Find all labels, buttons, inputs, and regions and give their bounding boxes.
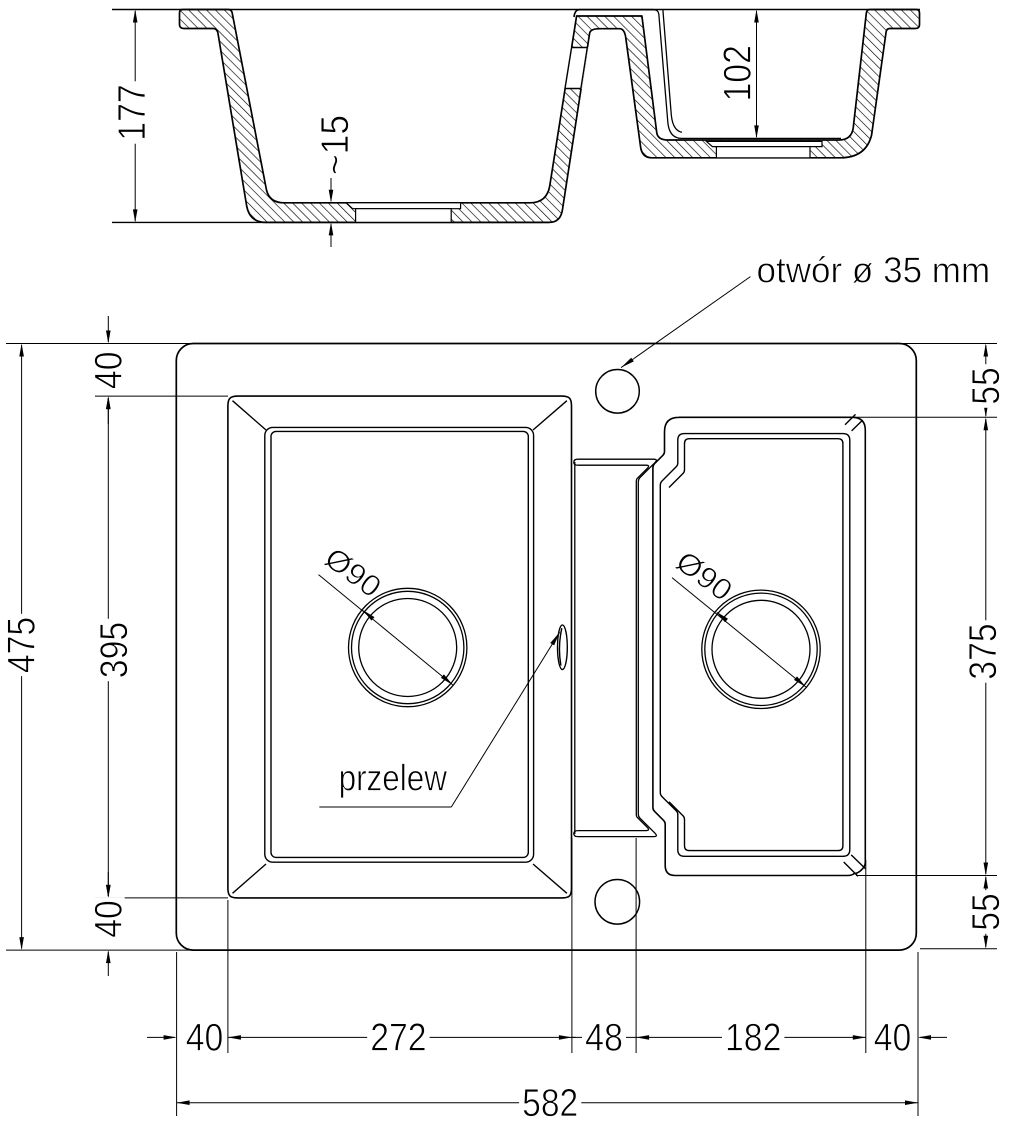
svg-text:55: 55: [965, 367, 1008, 405]
svg-text:55: 55: [965, 893, 1008, 931]
svg-text:otwór ø 35 mm: otwór ø 35 mm: [757, 250, 991, 291]
svg-text:40: 40: [88, 352, 131, 390]
svg-text:~15: ~15: [314, 115, 357, 175]
svg-text:102: 102: [717, 45, 760, 101]
svg-text:przelew: przelew: [339, 758, 448, 799]
svg-text:177: 177: [111, 84, 154, 140]
svg-text:272: 272: [370, 1016, 426, 1059]
svg-text:40: 40: [88, 900, 131, 938]
svg-text:182: 182: [725, 1016, 781, 1059]
svg-text:395: 395: [93, 622, 136, 678]
svg-text:582: 582: [522, 1082, 578, 1125]
svg-text:48: 48: [585, 1016, 623, 1059]
svg-text:40: 40: [874, 1016, 912, 1059]
svg-text:375: 375: [962, 623, 1005, 679]
svg-text:40: 40: [186, 1016, 224, 1059]
svg-text:475: 475: [1, 617, 44, 673]
